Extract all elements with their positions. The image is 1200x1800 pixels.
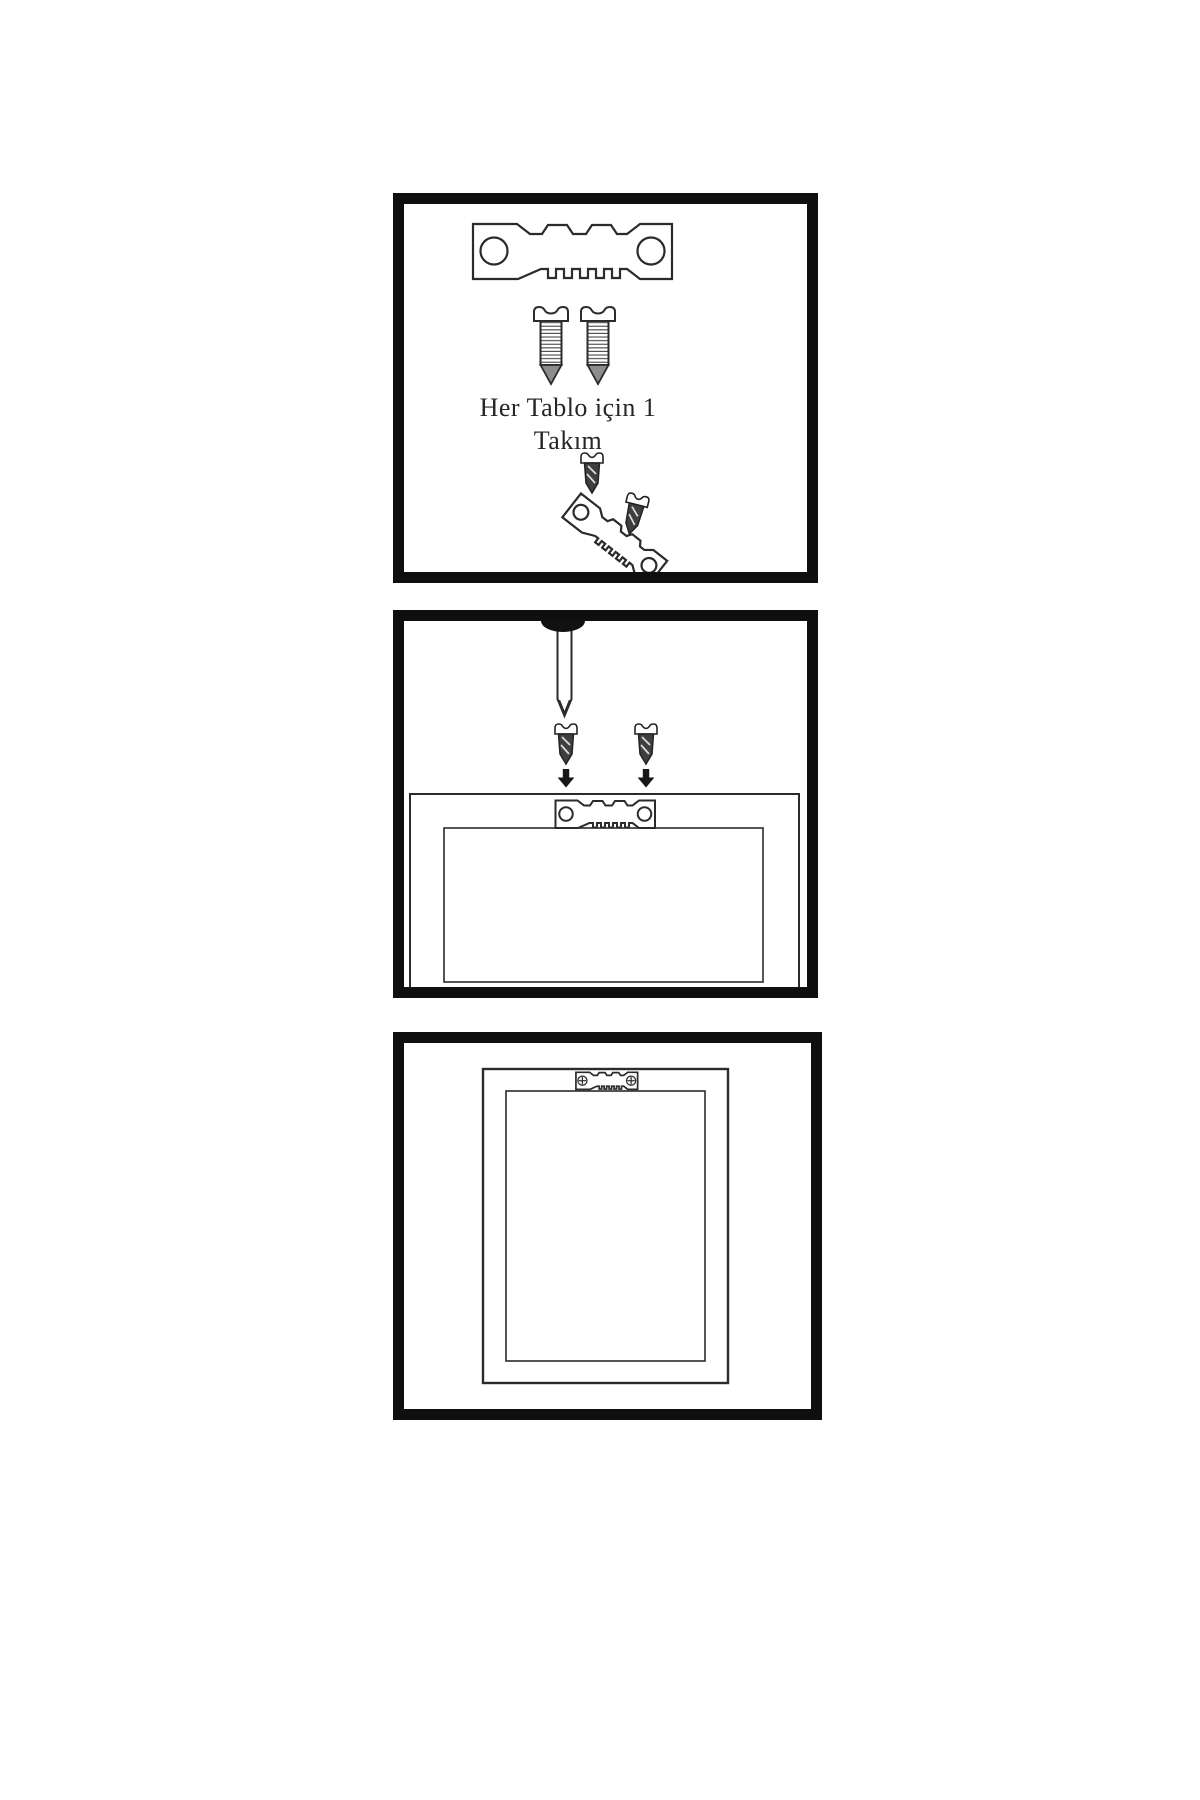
- phillips-screw-head-icon: [627, 1076, 636, 1085]
- screw-icon: [534, 307, 568, 384]
- phillips-screw-head-icon: [578, 1076, 587, 1085]
- screw-icon: [581, 307, 615, 384]
- arrow-down-icon: [558, 769, 575, 788]
- wall-nail-icon: [541, 621, 585, 716]
- dark-screw-icon: [555, 724, 577, 764]
- hung-frame-illustration: [404, 1043, 811, 1409]
- step-3-panel: [393, 1032, 822, 1420]
- arrow-down-icon: [638, 769, 655, 788]
- dark-screw-icon: [619, 492, 650, 536]
- kit-caption: Her Tablo için 1 Takım: [448, 392, 688, 457]
- dark-screw-icon: [635, 724, 657, 764]
- hardware-kit-illustration: [404, 204, 807, 572]
- frame-front-icon: [483, 1069, 728, 1383]
- step-1-panel: Her Tablo için 1 Takım: [393, 193, 818, 583]
- sawtooth-hanger-icon: [473, 224, 672, 279]
- dark-screw-icon: [581, 453, 603, 493]
- step-2-panel: [393, 610, 818, 998]
- brand-footer: ENK WALL ART: [0, 1470, 1200, 1670]
- tilted-sawtooth-hanger-icon: [562, 493, 667, 572]
- mounting-illustration: [404, 621, 807, 987]
- instruction-sheet: Her Tablo için 1 Takım: [0, 0, 1200, 1800]
- sawtooth-hanger-icon: [556, 801, 656, 829]
